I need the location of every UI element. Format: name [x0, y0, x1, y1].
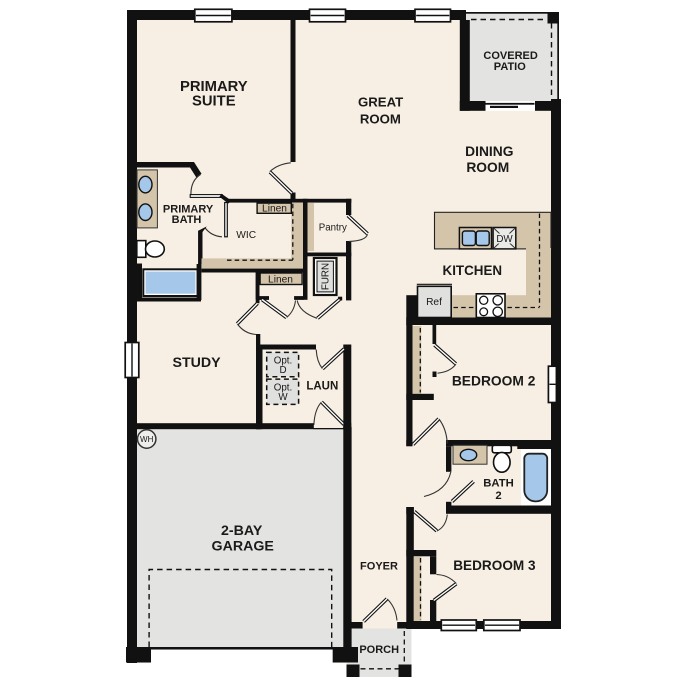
svg-text:WIC: WIC	[236, 230, 256, 241]
svg-text:BATH: BATH	[172, 214, 202, 226]
svg-text:STUDY: STUDY	[173, 355, 222, 371]
svg-text:Pantry: Pantry	[319, 223, 347, 234]
svg-text:PATIO: PATIO	[494, 61, 526, 73]
svg-text:WH: WH	[140, 435, 154, 444]
svg-text:DINING: DINING	[465, 144, 513, 159]
svg-text:2: 2	[495, 490, 501, 502]
svg-text:W: W	[278, 392, 288, 403]
svg-text:LAUN: LAUN	[306, 381, 338, 393]
svg-text:BEDROOM 3: BEDROOM 3	[453, 558, 536, 573]
svg-text:FURN: FURN	[321, 263, 332, 290]
svg-text:GARAGE: GARAGE	[212, 539, 274, 555]
svg-text:BATH: BATH	[483, 478, 514, 490]
svg-text:ROOM: ROOM	[466, 160, 509, 175]
svg-text:COVERED: COVERED	[483, 50, 537, 62]
svg-text:KITCHEN: KITCHEN	[443, 263, 503, 278]
svg-text:GREAT: GREAT	[358, 95, 403, 110]
svg-text:DW: DW	[496, 234, 513, 245]
svg-text:Linen: Linen	[262, 204, 287, 215]
svg-text:FOYER: FOYER	[360, 560, 398, 572]
svg-text:Linen: Linen	[268, 275, 293, 286]
svg-text:D: D	[279, 365, 286, 376]
svg-text:BEDROOM 2: BEDROOM 2	[452, 374, 536, 389]
svg-text:PORCH: PORCH	[359, 644, 399, 656]
svg-text:ROOM: ROOM	[360, 111, 401, 126]
svg-text:Ref: Ref	[426, 297, 442, 308]
svg-text:SUITE: SUITE	[192, 94, 236, 110]
svg-text:2-BAY: 2-BAY	[221, 523, 263, 539]
